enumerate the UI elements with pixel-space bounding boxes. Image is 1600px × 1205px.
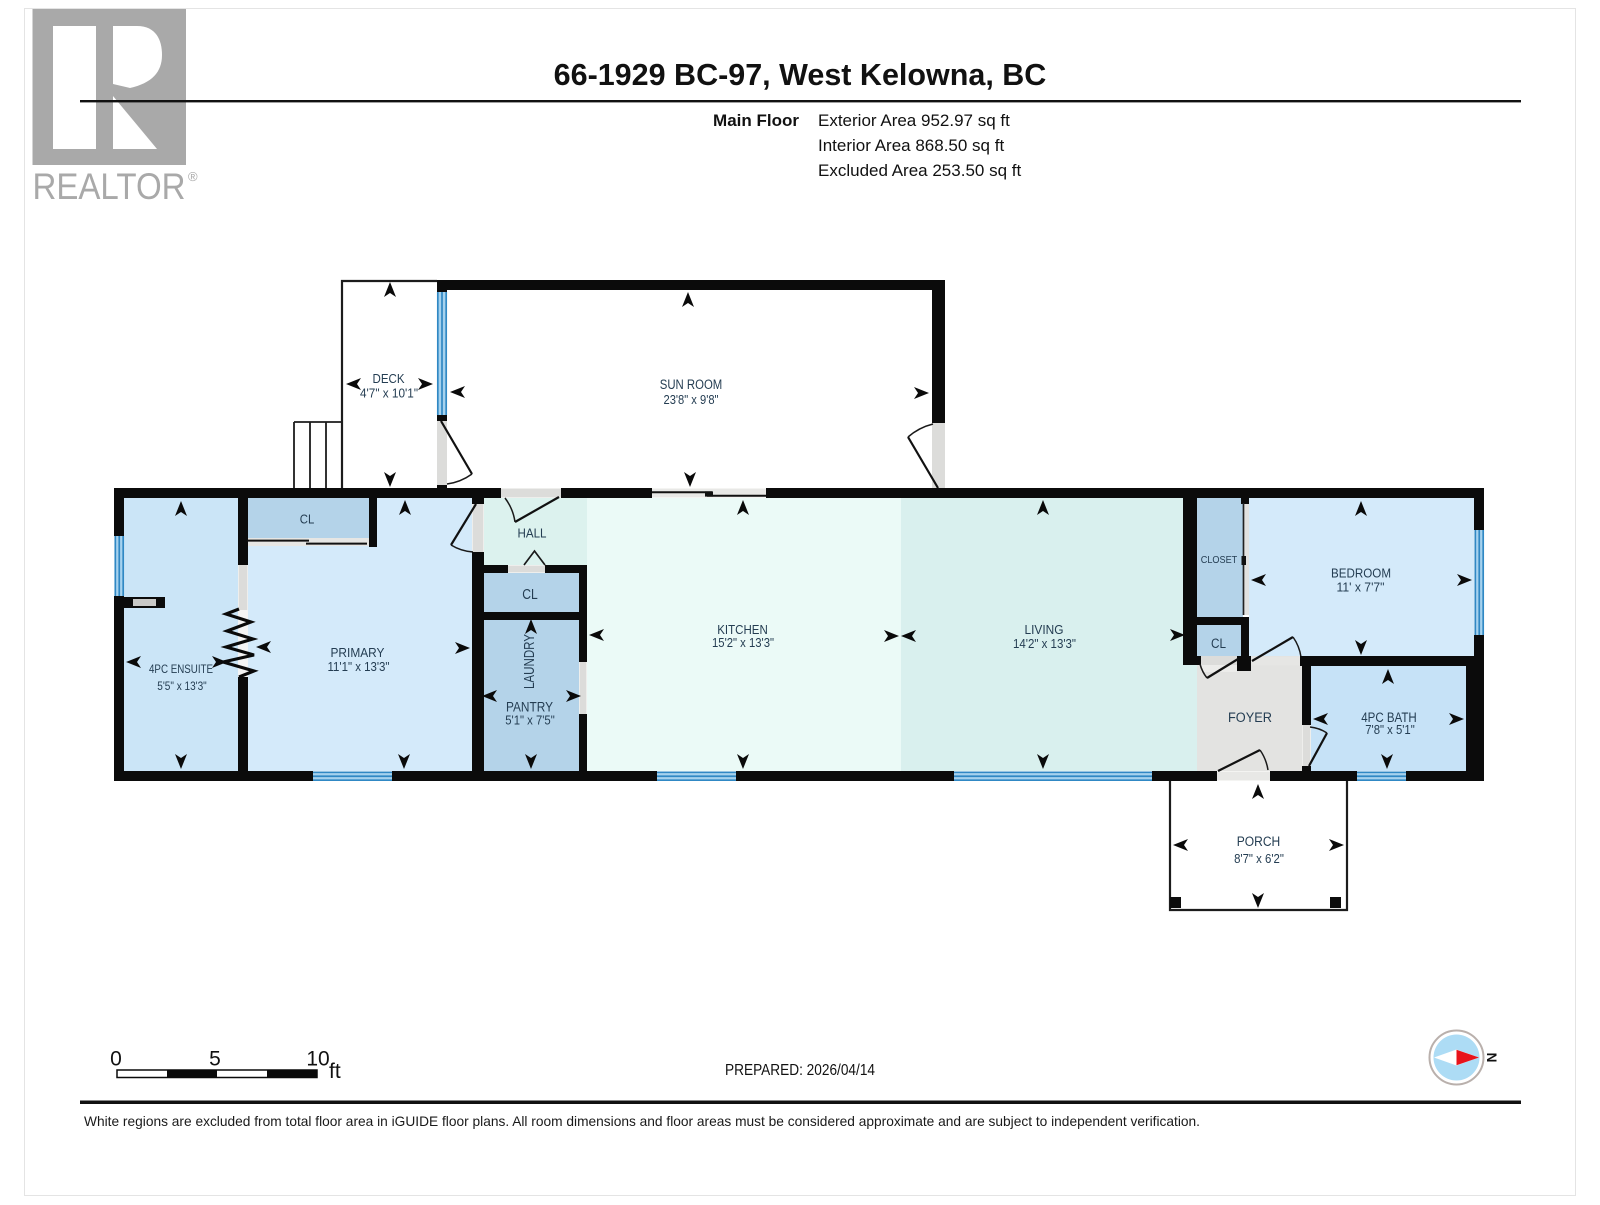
svg-text:KITCHEN: KITCHEN (717, 622, 768, 637)
svg-text:N: N (1484, 1053, 1499, 1063)
svg-text:Interior Area 868.50 sq ft: Interior Area 868.50 sq ft (818, 136, 1004, 155)
svg-text:PORCH: PORCH (1237, 834, 1281, 849)
svg-text:FOYER: FOYER (1228, 710, 1272, 725)
svg-text:ft: ft (329, 1060, 341, 1083)
svg-text:PREPARED: 2026/04/14: PREPARED: 2026/04/14 (725, 1062, 875, 1079)
svg-text:PANTRY: PANTRY (506, 699, 554, 715)
svg-text:5'1" x 7'5": 5'1" x 7'5" (505, 714, 555, 728)
svg-text:11'1" x 13'3": 11'1" x 13'3" (328, 660, 390, 674)
svg-text:66-1929 BC-97, West Kelowna, B: 66-1929 BC-97, West Kelowna, BC (554, 58, 1047, 92)
svg-text:0: 0 (110, 1048, 122, 1071)
svg-text:LIVING: LIVING (1025, 622, 1064, 637)
svg-text:BEDROOM: BEDROOM (1331, 566, 1391, 581)
svg-text:14'2" x 13'3": 14'2" x 13'3" (1013, 637, 1076, 651)
svg-text:5: 5 (209, 1048, 221, 1071)
svg-text:CL: CL (1211, 636, 1226, 651)
svg-text:REALTOR: REALTOR (33, 166, 186, 207)
svg-text:Exterior Area 952.97 sq ft: Exterior Area 952.97 sq ft (818, 111, 1010, 130)
svg-text:4PC ENSUITE: 4PC ENSUITE (149, 662, 213, 676)
svg-text:DECK: DECK (373, 371, 405, 386)
svg-text:Excluded Area 253.50 sq ft: Excluded Area 253.50 sq ft (818, 161, 1021, 180)
svg-text:11' x 7'7": 11' x 7'7" (1337, 581, 1385, 595)
svg-text:White regions are excluded fro: White regions are excluded from total fl… (84, 1113, 1200, 1129)
svg-text:®: ® (188, 169, 198, 184)
svg-text:PRIMARY: PRIMARY (331, 645, 385, 660)
svg-text:10: 10 (306, 1048, 329, 1071)
svg-text:CL: CL (300, 512, 315, 527)
svg-text:15'2" x 13'3": 15'2" x 13'3" (712, 636, 774, 650)
svg-text:Main Floor: Main Floor (713, 111, 799, 130)
svg-text:CL: CL (522, 586, 538, 603)
svg-text:7'8" x 5'1": 7'8" x 5'1" (1365, 723, 1415, 737)
svg-text:4'7" x 10'1": 4'7" x 10'1" (360, 387, 418, 401)
svg-text:HALL: HALL (518, 526, 547, 541)
svg-text:SUN ROOM: SUN ROOM (660, 377, 723, 392)
svg-text:8'7" x 6'2": 8'7" x 6'2" (1234, 852, 1284, 866)
svg-text:CLOSET: CLOSET (1201, 555, 1238, 566)
svg-text:5'5" x 13'3": 5'5" x 13'3" (157, 679, 207, 693)
svg-text:23'8" x 9'8": 23'8" x 9'8" (664, 393, 719, 407)
svg-text:LAUNDRY: LAUNDRY (522, 634, 538, 689)
